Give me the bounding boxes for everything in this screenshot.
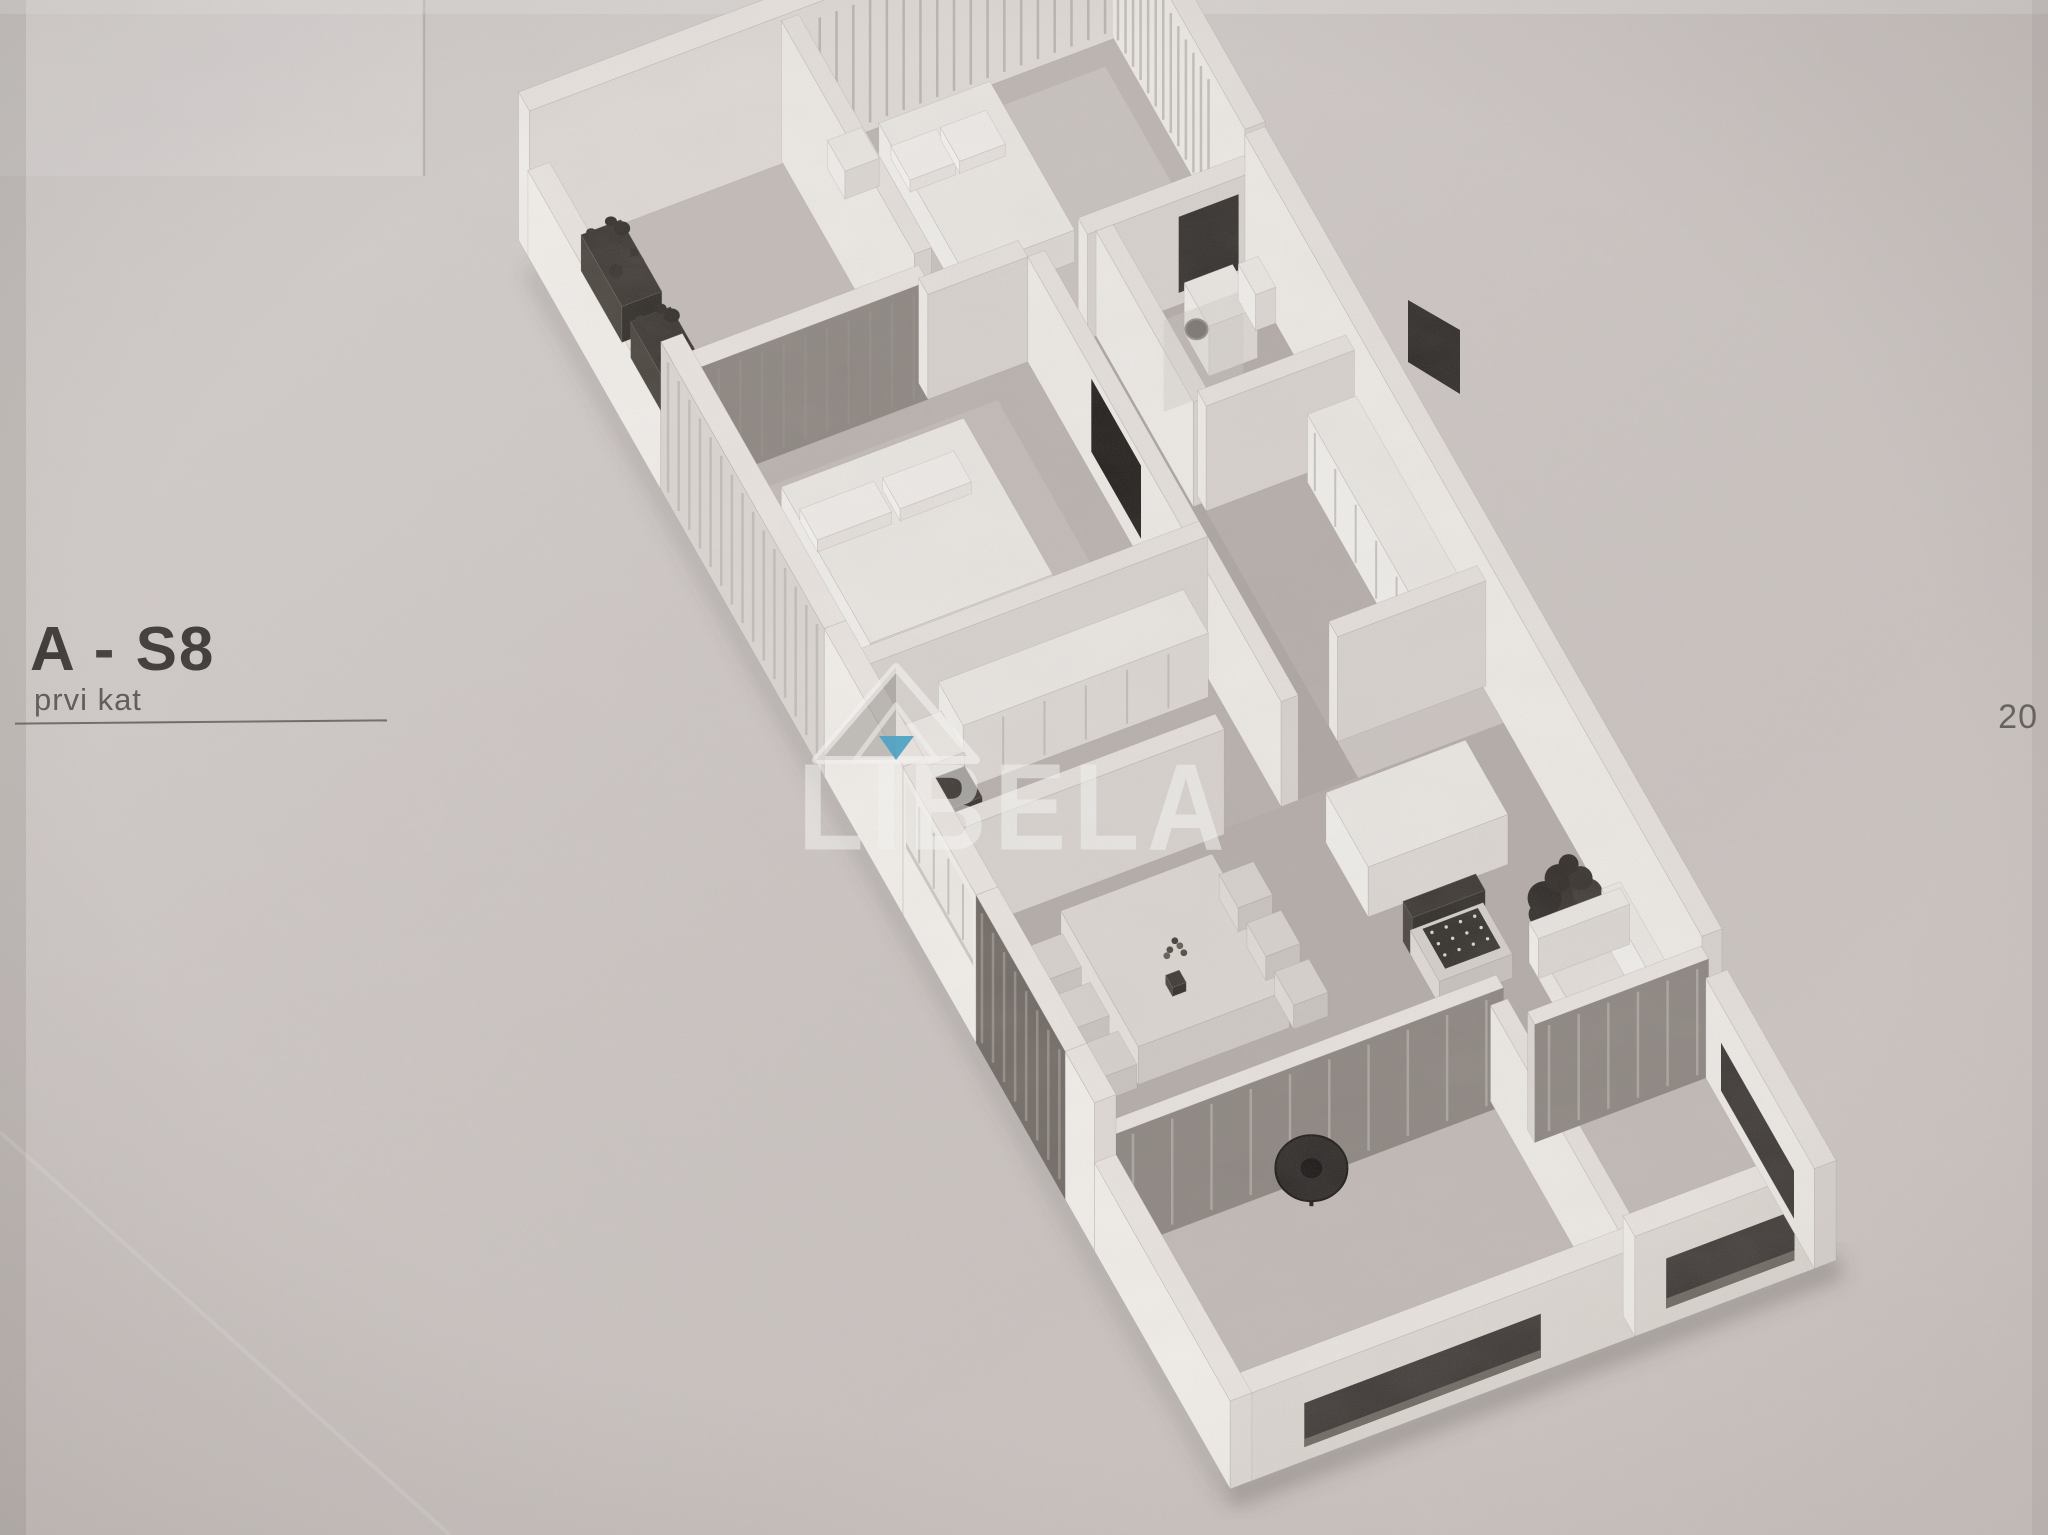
floorplan-isometric-render xyxy=(0,0,2048,1535)
floor-label: prvi kat xyxy=(34,682,142,718)
unit-label: A - S8 xyxy=(30,614,215,685)
page-number: 20 xyxy=(1998,698,2038,737)
scanned-page: A - S8 prvi kat 20 LIBELA xyxy=(0,0,2048,1535)
